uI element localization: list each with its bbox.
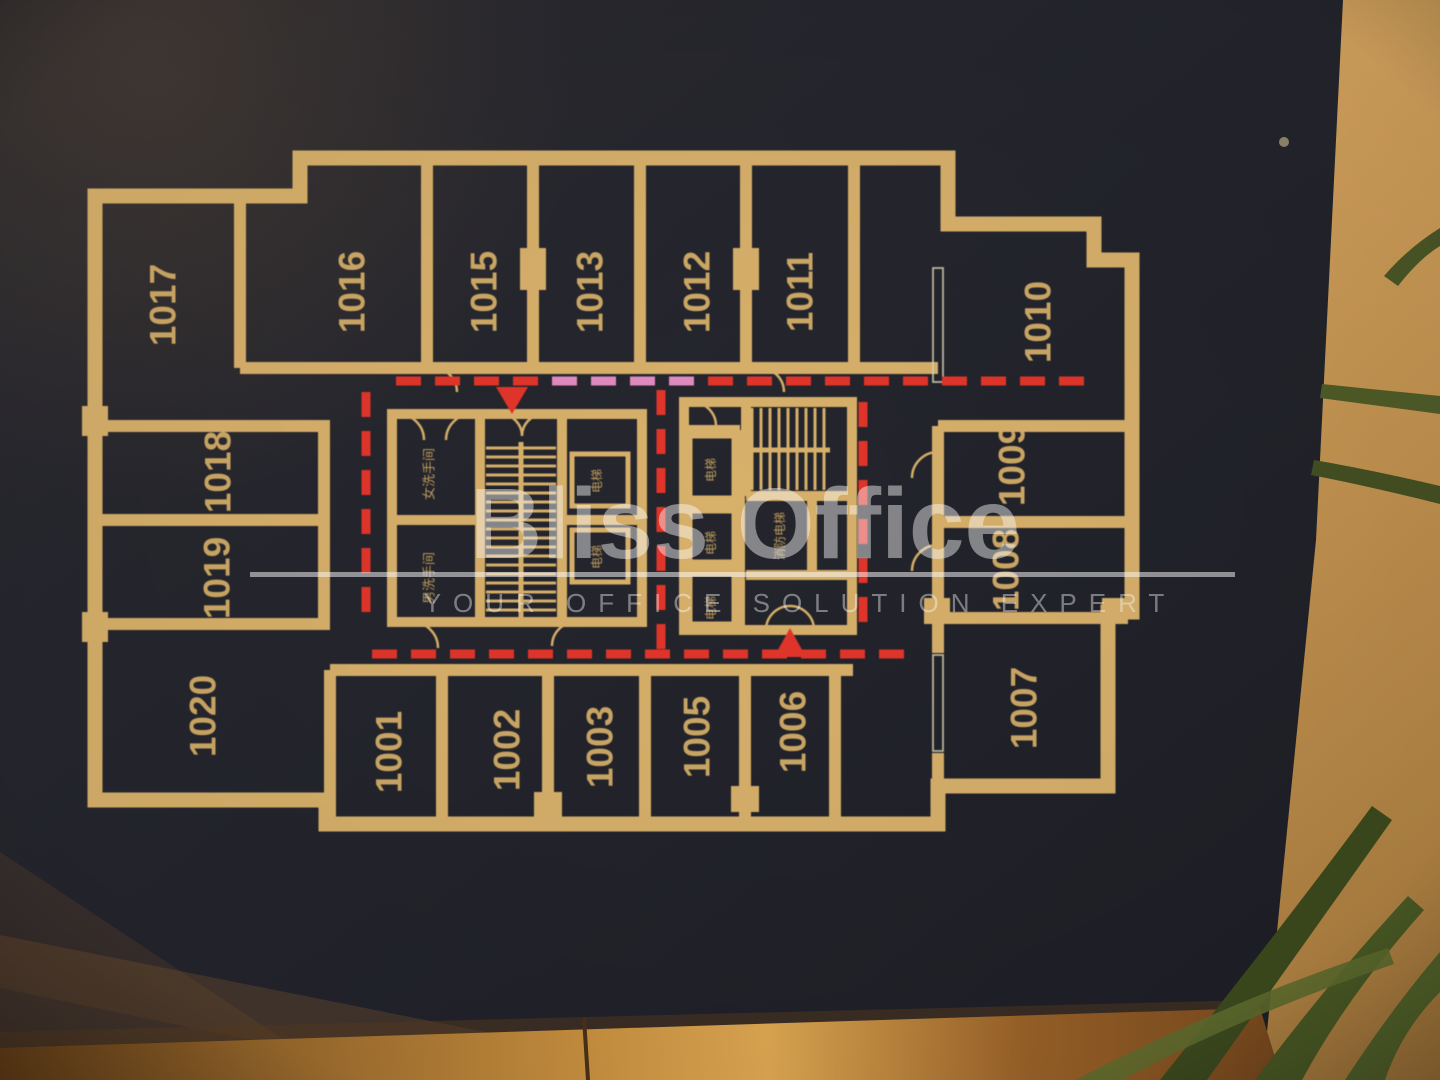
photo-of-floorplan-sign: 1017101610151013101210111010101810191009… [0, 0, 1440, 1080]
scene: 1017101610151013101210111010101810191009… [0, 0, 1440, 1080]
vignette [0, 0, 1440, 1080]
